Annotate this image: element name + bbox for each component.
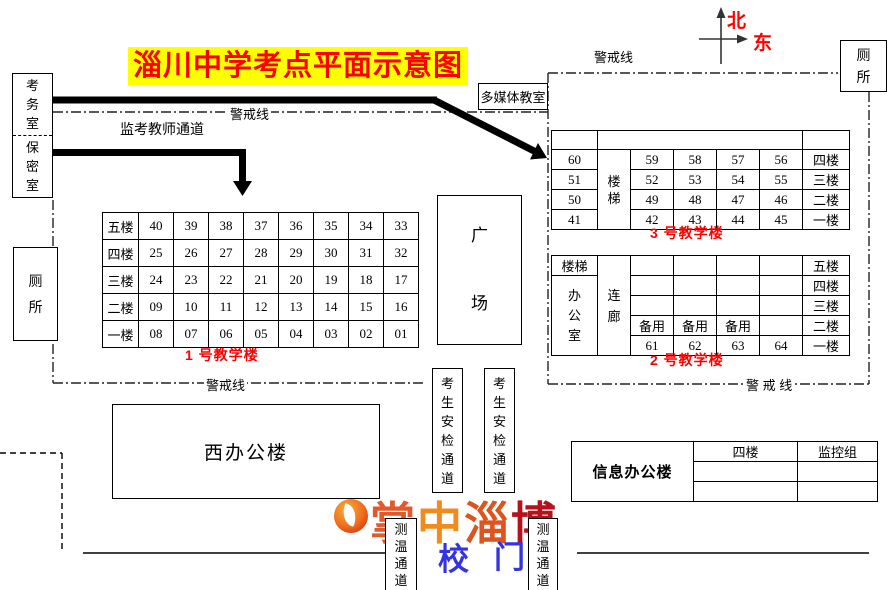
table-row: 一楼 08 07 06 05 04 03 02 01 [103,321,419,348]
compass-east-label: 东 [753,28,772,55]
floor-label-cell: 一楼 [803,336,850,356]
empty-cell [674,256,717,276]
security-check-channel-2: 考生安检通道 [484,368,515,493]
classroom-cell: 11 [209,294,244,321]
classroom-cell: 55 [760,170,803,190]
cordon-label-bottom-right: 警 戒 线 [744,375,794,394]
page-title: 淄川中学考点平面示意图 [128,47,468,85]
temperature-channel-1: 测温通道 [385,518,417,590]
building1-table: 五楼 40 39 38 37 36 35 34 33 四楼 25 26 27 2… [102,212,419,348]
classroom-cell: 32 [384,240,419,267]
table-row [552,131,850,150]
table-row: 楼梯 连廊 五楼 [552,256,850,276]
classroom-cell: 59 [631,150,674,170]
security-check-channel-1: 考生安检通道 [432,368,463,493]
route-arrow-to-building1 [53,150,252,196]
classroom-cell: 15 [349,294,384,321]
classroom-cell: 36 [279,213,314,240]
info-office-name-cell: 信息办公楼 [572,442,694,502]
stairs-cell: 楼梯 [598,150,631,230]
classroom-cell: 14 [314,294,349,321]
classroom-cell: 37 [244,213,279,240]
empty-cell [631,256,674,276]
multimedia-classroom: 多媒体教室 [478,83,548,110]
cordon-label-top-left: 警戒线 [228,104,271,123]
classroom-cell: 52 [631,170,674,190]
classroom-cell: 34 [349,213,384,240]
classroom-cell: 38 [209,213,244,240]
school-gate-label-right: 门 [494,532,525,577]
classroom-cell: 20 [279,267,314,294]
table-row: 二楼 09 10 11 12 13 14 15 16 [103,294,419,321]
empty-cell [631,296,674,316]
building3-table: 60 楼梯 59 58 57 56 四楼 51 52 53 54 55 三楼 5… [551,130,850,230]
empty-cell [760,276,803,296]
classroom-cell: 05 [244,321,279,348]
classroom-cell: 01 [384,321,419,348]
floor-label-cell: 四楼 [803,276,850,296]
table-row: 60 楼梯 59 58 57 56 四楼 [552,150,850,170]
classroom-cell: 29 [279,240,314,267]
cordon-label-bottom-left: 警戒线 [204,375,247,394]
classroom-cell: 35 [314,213,349,240]
classroom-cell: 41 [552,210,598,230]
empty-cell [760,296,803,316]
empty-cell [798,462,878,482]
floor-label-cell: 三楼 [803,170,850,190]
table-row: 五楼 40 39 38 37 36 35 34 33 [103,213,419,240]
empty-cell [552,131,598,150]
classroom-cell: 31 [349,240,384,267]
classroom-cell: 23 [174,267,209,294]
empty-cell [760,256,803,276]
classroom-cell: 51 [552,170,598,190]
classroom-cell: 21 [244,267,279,294]
table-row: 51 52 53 54 55 三楼 [552,170,850,190]
classroom-cell: 53 [674,170,717,190]
classroom-cell: 33 [384,213,419,240]
header-cell: 监控组 [798,442,878,462]
classroom-cell: 24 [139,267,174,294]
floor-label-cell: 四楼 [803,150,850,170]
classroom-cell: 28 [244,240,279,267]
classroom-cell: 08 [139,321,174,348]
empty-cell [674,276,717,296]
floor-label-cell: 五楼 [803,256,850,276]
secrecy-room: 保密室 [13,136,52,197]
building3-name-label: 3 号教学楼 [650,223,724,243]
toilet-left-room: 厕所 [13,247,58,341]
classroom-cell: 04 [279,321,314,348]
classroom-cell: 26 [174,240,209,267]
classroom-cell: 47 [717,190,760,210]
empty-cell [803,131,850,150]
compass-north-label: 北 [727,6,746,33]
teacher-passage-label: 监考教师通道 [120,119,204,139]
floor-label-cell: 四楼 [103,240,139,267]
classroom-cell: 39 [174,213,209,240]
empty-cell [798,482,878,502]
classroom-cell: 10 [174,294,209,321]
floor-label-cell: 一楼 [803,210,850,230]
classroom-cell: 54 [717,170,760,190]
classroom-cell: 56 [760,150,803,170]
classroom-cell: 09 [139,294,174,321]
table-row: 三楼 24 23 22 21 20 19 18 17 [103,267,419,294]
classroom-cell: 30 [314,240,349,267]
classroom-cell: 12 [244,294,279,321]
floor-label-cell: 二楼 [103,294,139,321]
exam-office-room: 考务室 [13,74,52,136]
classroom-cell: 64 [760,336,803,356]
backup-cell: 备用 [717,316,760,336]
classroom-cell: 45 [760,210,803,230]
building1-name-label: 1 号教学楼 [185,345,259,365]
classroom-cell: 60 [552,150,598,170]
building2-name-label: 2 号教学楼 [650,350,724,370]
empty-cell [717,296,760,316]
classroom-cell: 18 [349,267,384,294]
classroom-cell: 58 [674,150,717,170]
info-office-table: 信息办公楼 四楼 监控组 [571,441,878,502]
floor-label-cell: 三楼 [103,267,139,294]
classroom-cell: 25 [139,240,174,267]
backup-cell: 备用 [674,316,717,336]
classroom-cell: 03 [314,321,349,348]
stairs-cell: 楼梯 [552,256,598,276]
backup-cell: 备用 [631,316,674,336]
empty-cell [598,131,803,150]
classroom-cell: 46 [760,190,803,210]
floor-label-cell: 五楼 [103,213,139,240]
classroom-cell: 19 [314,267,349,294]
building2-table: 楼梯 连廊 五楼 办公室 四楼 三楼 备用 备用 备用 [551,255,850,356]
table-row: 信息办公楼 四楼 监控组 [572,442,878,462]
empty-cell [694,482,798,502]
empty-cell [760,316,803,336]
exam-office-and-secrecy-room: 考务室 保密室 [12,73,53,198]
classroom-cell: 48 [674,190,717,210]
empty-cell [694,462,798,482]
school-gate-label-left: 校 [438,534,469,579]
cordon-label-top-right: 警戒线 [592,47,635,66]
classroom-cell: 06 [209,321,244,348]
floor-label-cell: 三楼 [803,296,850,316]
classroom-cell: 13 [279,294,314,321]
floor-label-cell: 二楼 [803,190,850,210]
empty-cell [631,276,674,296]
table-row: 50 49 48 47 46 二楼 [552,190,850,210]
floor-label-cell: 一楼 [103,321,139,348]
temperature-channel-2: 测温通道 [528,518,558,590]
floor-label-cell: 二楼 [803,316,850,336]
watermark-logo-icon [334,499,368,533]
classroom-cell: 02 [349,321,384,348]
header-cell: 四楼 [694,442,798,462]
square-area: 广场 [437,195,522,345]
classroom-cell: 16 [384,294,419,321]
west-office-building: 西办公楼 [112,404,380,499]
classroom-cell: 27 [209,240,244,267]
empty-cell [674,296,717,316]
classroom-cell: 49 [631,190,674,210]
classroom-cell: 40 [139,213,174,240]
classroom-cell: 50 [552,190,598,210]
classroom-cell: 17 [384,267,419,294]
classroom-cell: 57 [717,150,760,170]
table-row: 四楼 25 26 27 28 29 30 31 32 [103,240,419,267]
classroom-cell: 22 [209,267,244,294]
empty-cell [717,276,760,296]
corridor-cell: 连廊 [598,256,631,356]
toilet-top-right-room: 厕所 [840,40,887,92]
classroom-cell: 07 [174,321,209,348]
exam-site-map: 掌 中 淄 博 淄川中学考点平面示意图 北 东 考务室 保密室 厕所 厕所 多媒… [0,0,890,590]
office-cell: 办公室 [552,276,598,356]
table-row: 办公室 四楼 [552,276,850,296]
empty-cell [717,256,760,276]
